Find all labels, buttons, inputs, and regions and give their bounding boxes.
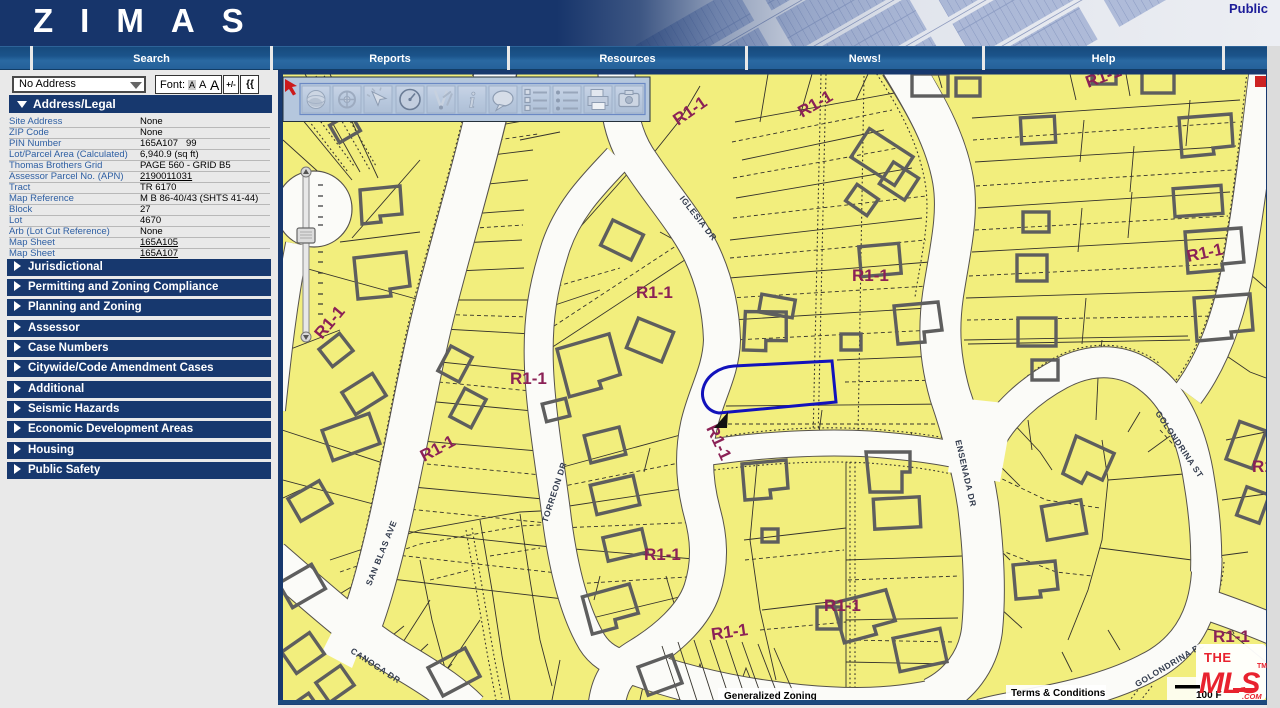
svg-text:R1-1: R1-1 xyxy=(510,369,547,388)
svg-text:R1-1: R1-1 xyxy=(852,266,889,285)
svg-text:i: i xyxy=(469,88,476,113)
svg-text:R1-1: R1-1 xyxy=(644,545,681,564)
svg-text:R1-1: R1-1 xyxy=(1213,627,1250,646)
svg-text:.COM: .COM xyxy=(1242,692,1262,701)
svg-text:R1-1: R1-1 xyxy=(1252,457,1267,476)
svg-text:R1-1: R1-1 xyxy=(636,283,673,302)
svg-text:R1-1: R1-1 xyxy=(824,596,861,615)
svg-text:TM: TM xyxy=(1257,663,1267,670)
svg-text:Terms & Conditions: Terms & Conditions xyxy=(1011,688,1106,699)
svg-text:THE: THE xyxy=(1204,650,1232,665)
